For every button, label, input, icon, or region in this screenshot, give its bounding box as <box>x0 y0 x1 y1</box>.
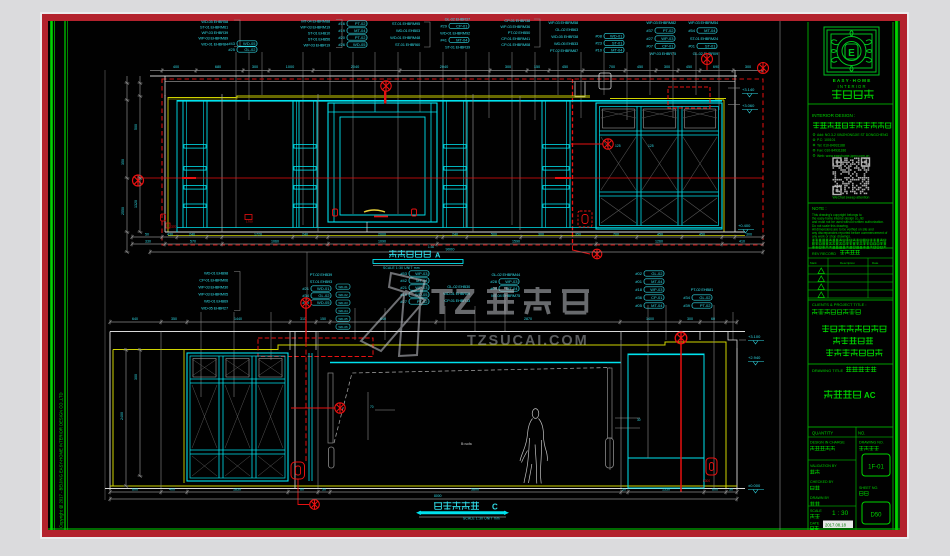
svg-text:400: 400 <box>169 488 175 492</box>
svg-text:MT-04: MT-04 <box>651 279 663 284</box>
svg-text:410: 410 <box>739 240 745 244</box>
svg-text:#19: #19 <box>338 28 345 33</box>
svg-text:300: 300 <box>664 65 670 69</box>
svg-text:D50: D50 <box>870 513 882 519</box>
svg-text:300: 300 <box>134 374 138 380</box>
svg-text:#43: #43 <box>228 41 235 46</box>
svg-text:WP-03 EHBRM58: WP-03 EHBRM58 <box>548 20 579 25</box>
svg-text:ST-01: ST-01 <box>612 41 623 46</box>
svg-text:450: 450 <box>637 65 643 69</box>
svg-text:150: 150 <box>534 65 540 69</box>
svg-text:MT-04: MT-04 <box>611 48 623 53</box>
svg-text:70: 70 <box>370 405 374 409</box>
svg-text:2400: 2400 <box>120 412 124 420</box>
svg-text:DRAWING NO.: DRAWING NO. <box>859 441 884 445</box>
svg-text:1400: 1400 <box>646 317 654 321</box>
svg-text:WP-03: WP-03 <box>415 271 428 276</box>
svg-text:WD-05 EHBR58: WD-05 EHBR58 <box>201 19 229 24</box>
svg-text:#08: #08 <box>595 34 602 39</box>
svg-text:640: 640 <box>132 317 138 321</box>
svg-text:500: 500 <box>491 233 497 237</box>
svg-text:1320: 1320 <box>134 200 138 208</box>
svg-text:ST-01 EHB93: ST-01 EHB93 <box>310 279 333 284</box>
svg-text:2000: 2000 <box>378 233 386 237</box>
svg-text:1550: 1550 <box>662 488 670 492</box>
svg-text:WD-01 EHB03: WD-01 EHB03 <box>396 28 421 33</box>
svg-text:1F-01: 1F-01 <box>868 465 884 471</box>
svg-text:TZ: TZ <box>431 281 477 322</box>
svg-text:SCALE 1:30 UNIT mm: SCALE 1:30 UNIT mm <box>383 266 420 270</box>
svg-text:PT-02 EHB81: PT-02 EHB81 <box>691 287 714 292</box>
svg-text:125: 125 <box>615 144 621 148</box>
svg-text:A: A <box>435 251 441 260</box>
svg-text:450: 450 <box>686 65 692 69</box>
svg-text:330: 330 <box>145 240 151 244</box>
svg-text:300: 300 <box>538 233 544 237</box>
svg-text:370: 370 <box>171 225 177 229</box>
svg-text:#16: #16 <box>338 21 345 26</box>
svg-text:ST-01 EHBRM24: ST-01 EHBRM24 <box>690 36 719 41</box>
svg-text:#10: #10 <box>595 48 602 53</box>
svg-text:1 : 30: 1 : 30 <box>832 510 849 517</box>
svg-text:Web: www.easyhome-jqmy.com.cn: Web: www.easyhome-jqmy.com.cn <box>817 154 870 158</box>
svg-text:CP-01 EHBRM41: CP-01 EHBRM41 <box>501 36 531 41</box>
svg-text:WP-03: WP-03 <box>661 36 674 41</box>
svg-text:WD-05 EHB33: WD-05 EHB33 <box>554 41 579 46</box>
svg-text:WP-03 EHBR19: WP-03 EHBR19 <box>304 43 331 48</box>
svg-text:WD-05: WD-05 <box>317 300 330 305</box>
svg-text:#54: #54 <box>688 28 695 33</box>
svg-text:QUANTITY: QUANTITY <box>812 431 833 436</box>
svg-text:any work or shop drawings.: any work or shop drawings. <box>812 235 851 239</box>
svg-text:700: 700 <box>609 65 615 69</box>
svg-text:+3.100: +3.100 <box>748 334 761 339</box>
svg-text:1260: 1260 <box>655 240 663 244</box>
svg-text:MT-04: MT-04 <box>354 28 366 33</box>
svg-text:Fax: 010-84931186: Fax: 010-84931186 <box>817 149 846 153</box>
svg-text:#34: #34 <box>302 293 309 298</box>
svg-text:1060: 1060 <box>271 240 279 244</box>
svg-text:E A S Y · H O M E: E A S Y · H O M E <box>833 78 871 83</box>
svg-text:WD-01 EHBRM92: WD-01 EHBRM92 <box>440 31 471 36</box>
svg-text:30: 30 <box>637 418 641 422</box>
svg-text:#25: #25 <box>228 47 235 52</box>
svg-text:E: E <box>848 48 855 59</box>
svg-text:TZSUCAI.COM: TZSUCAI.COM <box>467 333 589 349</box>
svg-text:DRAWING TITLE: DRAWING TITLE <box>812 368 843 373</box>
svg-text:Tel: 010-84931188: Tel: 010-84931188 <box>817 143 845 147</box>
svg-text:2017.08.18: 2017.08.18 <box>825 523 847 528</box>
svg-text:WD-06: WD-06 <box>338 325 348 329</box>
svg-text:Add: NO.3-2 XINZHONGJIE ST DO: Add: NO.3-2 XINZHONGJIE ST DONGCHENG <box>817 133 889 137</box>
svg-text:WeChat sweep attention: WeChat sweep attention <box>833 196 870 200</box>
svg-text:450: 450 <box>657 233 663 237</box>
svg-text:ST-01 EHBRM61: ST-01 EHBRM61 <box>200 25 229 30</box>
svg-text:WD-05 EHBR38: WD-05 EHBR38 <box>551 34 579 39</box>
svg-text:240: 240 <box>452 233 458 237</box>
svg-text:WD-03: WD-03 <box>338 301 348 305</box>
svg-text:WD-01: WD-01 <box>338 285 348 289</box>
svg-text:#37: #37 <box>646 28 653 33</box>
svg-text:#01: #01 <box>635 279 642 284</box>
svg-text:WP-03 EHBRM54: WP-03 EHBRM54 <box>688 20 719 25</box>
svg-text:#20: #20 <box>338 35 345 40</box>
svg-text:CLIENTS & PROJECT TITLE :: CLIENTS & PROJECT TITLE : <box>812 302 867 307</box>
svg-text:Description: Description <box>840 261 855 265</box>
svg-text:#02: #02 <box>635 271 642 276</box>
svg-text:P.C: 100101: P.C: 100101 <box>817 138 836 142</box>
svg-text:==: == <box>700 485 704 489</box>
svg-text:PT-02: PT-02 <box>663 28 674 33</box>
svg-text:1850: 1850 <box>233 488 241 492</box>
svg-text:ST-01 EHBR60: ST-01 EHBR60 <box>395 42 421 47</box>
svg-text:2040: 2040 <box>440 65 448 69</box>
svg-text:GL-02: GL-02 <box>699 295 711 300</box>
svg-text:WD-05 EHBR27: WD-05 EHBR27 <box>201 306 229 311</box>
svg-text:C: C <box>492 503 498 512</box>
svg-text:WD-05: WD-05 <box>338 317 348 321</box>
svg-text:h300: h300 <box>703 479 710 483</box>
svg-text:1090: 1090 <box>378 240 386 244</box>
svg-text:ST-01 EHBR39: ST-01 EHBR39 <box>445 45 471 50</box>
svg-text:PT-02 EHBRM87: PT-02 EHBRM87 <box>550 48 579 53</box>
svg-text:#29: #29 <box>440 24 447 29</box>
svg-text:#27: #27 <box>646 36 653 41</box>
svg-text:WP-03 EHBRM30: WP-03 EHBRM30 <box>198 285 229 290</box>
svg-text:5800: 5800 <box>471 488 479 492</box>
svg-text:2870: 2870 <box>524 317 532 321</box>
svg-text:WD-01 EHBR84: WD-01 EHBR84 <box>201 42 229 47</box>
svg-text:#07: #07 <box>646 44 653 49</box>
svg-text:300: 300 <box>505 65 511 69</box>
svg-text:#39: #39 <box>683 303 690 308</box>
svg-text:WD-02: WD-02 <box>338 293 348 297</box>
svg-text:#28: #28 <box>490 279 497 284</box>
svg-text:MT-04: MT-04 <box>651 303 663 308</box>
svg-text:WD-04: WD-04 <box>338 309 348 313</box>
svg-text:DRAWN BY: DRAWN BY <box>810 496 830 500</box>
svg-text:ST-01 EHB10: ST-01 EHB10 <box>308 31 331 36</box>
svg-text:50: 50 <box>729 488 733 492</box>
svg-text:#18: #18 <box>635 287 642 292</box>
svg-text:GL-02 EHB63: GL-02 EHB63 <box>555 27 579 32</box>
svg-text:CP-01: CP-01 <box>662 44 674 49</box>
svg-text:NOTE :: NOTE : <box>812 206 827 211</box>
svg-text:WP-03: WP-03 <box>650 287 663 292</box>
svg-text:CP-01 EHBRM06: CP-01 EHBRM06 <box>199 278 229 283</box>
svg-text:Date: Date <box>872 261 879 265</box>
svg-text:#41: #41 <box>440 38 447 43</box>
svg-text:PT-02: PT-02 <box>700 303 711 308</box>
svg-text:I N T E R I O R: I N T E R I O R <box>838 84 866 89</box>
svg-text:GL-02 EHBRM44: GL-02 EHBRM44 <box>491 272 520 277</box>
svg-text:PT-02 EHB39: PT-02 EHB39 <box>310 272 333 277</box>
svg-text:2040: 2040 <box>351 65 359 69</box>
svg-text:9000: 9000 <box>446 247 456 252</box>
svg-text:WD-05: WD-05 <box>243 41 256 46</box>
svg-text:350: 350 <box>575 233 581 237</box>
svg-text:CP-01 EHBRM08: CP-01 EHBRM08 <box>501 42 531 47</box>
svg-text:450: 450 <box>562 65 568 69</box>
svg-text:Mark: Mark <box>810 261 817 265</box>
svg-text:WP-03 EHBRM36: WP-03 EHBRM36 <box>500 24 531 29</box>
svg-text:MT-04: MT-04 <box>704 28 716 33</box>
svg-text:SCALE 1:30 UNIT mm: SCALE 1:30 UNIT mm <box>463 517 500 521</box>
svg-text:+0.400: +0.400 <box>738 223 751 228</box>
svg-text:GL-02: GL-02 <box>651 271 663 276</box>
svg-text:570: 570 <box>190 240 196 244</box>
svg-text:WD-01 EHB98: WD-01 EHB98 <box>204 271 229 276</box>
svg-text:WP-03 EHBR39: WP-03 EHBR39 <box>202 30 229 35</box>
svg-text:PT-02: PT-02 <box>355 21 366 26</box>
svg-text:GL-02 EHBR37: GL-02 EHBR37 <box>445 17 471 22</box>
svg-text:8000: 8000 <box>434 494 442 498</box>
svg-text:60: 60 <box>711 317 715 321</box>
svg-text:DESIGN IN CHARGE: DESIGN IN CHARGE <box>810 441 845 445</box>
svg-text:700: 700 <box>613 233 619 237</box>
svg-text:690: 690 <box>713 65 719 69</box>
svg-text:WP-03: WP-03 <box>505 279 518 284</box>
svg-text:#23: #23 <box>595 41 602 46</box>
svg-text:#26: #26 <box>338 42 345 47</box>
svg-text:600: 600 <box>712 488 718 492</box>
svg-text:#21: #21 <box>302 286 309 291</box>
svg-text:300: 300 <box>252 65 258 69</box>
svg-text:#05: #05 <box>635 303 642 308</box>
svg-text:2550: 2550 <box>121 207 125 215</box>
svg-text:430: 430 <box>167 233 173 237</box>
svg-text:+3.060: +3.060 <box>742 103 755 108</box>
svg-text:50: 50 <box>622 488 626 492</box>
svg-text:310: 310 <box>300 317 306 321</box>
svg-text:WD-01: WD-01 <box>610 34 623 39</box>
svg-text:WD-01 EHB69: WD-01 EHB69 <box>204 299 229 304</box>
svg-text:±0.000: ±0.000 <box>748 483 761 488</box>
svg-text:WP-03 EHBRM82: WP-03 EHBRM82 <box>646 20 677 25</box>
svg-text:240: 240 <box>189 233 195 237</box>
svg-text:350: 350 <box>121 159 125 165</box>
svg-text:1000: 1000 <box>286 65 294 69</box>
svg-text:INTERIOR DESIGN :: INTERIOR DESIGN : <box>812 113 855 118</box>
svg-text:1440: 1440 <box>234 317 242 321</box>
svg-text:SHEET NO.: SHEET NO. <box>859 486 878 490</box>
svg-text:WP-03 EHBRM19: WP-03 EHBRM19 <box>300 25 331 30</box>
svg-text:240: 240 <box>302 233 308 237</box>
svg-text:1720: 1720 <box>254 233 262 237</box>
svg-text:ST-01: ST-01 <box>705 44 716 49</box>
svg-text:60: 60 <box>300 488 304 492</box>
svg-text:PT-02: PT-02 <box>355 35 366 40</box>
svg-text:DATE: DATE <box>810 522 820 526</box>
svg-text:CP-01: CP-01 <box>651 295 663 300</box>
svg-text:SCALE: SCALE <box>810 509 822 513</box>
svg-text:Copyright @ 2017 - BEIJING EAS: Copyright @ 2017 - BEIJING EASY-HOME INT… <box>59 393 64 529</box>
svg-text:1700: 1700 <box>246 220 253 224</box>
svg-text:AC: AC <box>864 391 876 400</box>
svg-text:#34: #34 <box>683 295 690 300</box>
svg-text:REV RECORD: REV RECORD <box>812 252 836 256</box>
svg-text:#21: #21 <box>400 285 407 290</box>
svg-text:450: 450 <box>699 233 705 237</box>
svg-text:WD-01 EHBRM48: WD-01 EHBRM48 <box>390 35 421 40</box>
svg-text:MT-04 EHBRM88: MT-04 EHBRM88 <box>301 19 331 24</box>
svg-text:GL-02: GL-02 <box>318 293 330 298</box>
svg-text:+3.140: +3.140 <box>742 87 755 92</box>
svg-text:CP-01: CP-01 <box>456 24 468 29</box>
svg-text:1:30: 1:30 <box>428 245 434 249</box>
svg-text:WP-03 EHBRM89: WP-03 EHBRM89 <box>198 36 229 41</box>
svg-text:400: 400 <box>173 65 179 69</box>
svg-text:125: 125 <box>648 144 654 148</box>
svg-text:50: 50 <box>322 488 326 492</box>
svg-text:300: 300 <box>687 317 693 321</box>
svg-text:VALIDATION BY: VALIDATION BY <box>810 464 837 468</box>
svg-text:+2.940: +2.940 <box>748 355 761 360</box>
svg-text:PT-02 EHB50: PT-02 EHB50 <box>508 30 531 35</box>
svg-text:#01: #01 <box>688 44 695 49</box>
svg-text:WP-03 EHBRM05: WP-03 EHBRM05 <box>198 292 229 297</box>
svg-text:B=sofa: B=sofa <box>461 442 472 446</box>
svg-text:600: 600 <box>132 488 138 492</box>
svg-text:50: 50 <box>145 233 149 237</box>
svg-text:WD-01: WD-01 <box>317 286 330 291</box>
svg-text:MT-04: MT-04 <box>456 38 468 43</box>
svg-text:#42: #42 <box>400 278 407 283</box>
svg-text:150: 150 <box>320 317 326 321</box>
svg-text:680: 680 <box>215 65 221 69</box>
svg-text:350: 350 <box>171 317 177 321</box>
svg-text:1590: 1590 <box>512 240 520 244</box>
svg-text:300: 300 <box>746 233 752 237</box>
svg-text:CP-01 EHBR38: CP-01 EHBR38 <box>504 18 531 23</box>
svg-text:GL-02: GL-02 <box>244 47 256 52</box>
svg-text:500: 500 <box>134 124 138 130</box>
svg-text:ST-01 EHB56: ST-01 EHB56 <box>308 37 331 42</box>
svg-text:CHECKED BY: CHECKED BY <box>810 480 834 484</box>
svg-text:#36: #36 <box>635 295 642 300</box>
svg-text:WD-05: WD-05 <box>353 42 366 47</box>
svg-text:ST-01 EHBRM95: ST-01 EHBRM95 <box>392 21 421 26</box>
svg-text:300: 300 <box>745 65 751 69</box>
svg-text:NO.: NO. <box>858 431 865 436</box>
